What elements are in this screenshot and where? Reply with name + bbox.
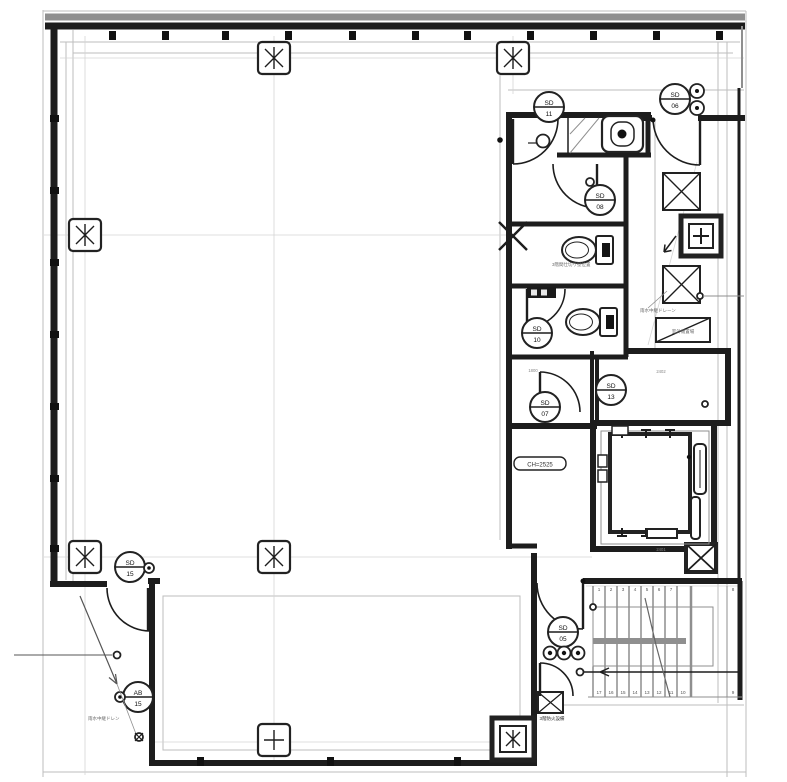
outdoor-unit-box: 室外機置場 xyxy=(656,318,710,342)
partition-note: 3階間仕切り壁位置 xyxy=(552,261,591,268)
device-sd11: SD 11 xyxy=(534,92,564,122)
svg-text:雨水中継ドレーン: 雨水中継ドレーン xyxy=(640,307,676,314)
ceiling-symbol-plus xyxy=(258,724,290,756)
svg-text:1: 1 xyxy=(598,587,601,592)
ceiling-symbol-asterisk-framed xyxy=(492,718,534,760)
device-sd08: SD 08 xyxy=(585,178,615,215)
svg-text:17: 17 xyxy=(596,690,602,695)
floor-plan-drawing: 1 2 3 4 5 6 7 8 17 16 15 14 13 12 11 10 … xyxy=(0,0,787,782)
svg-text:05: 05 xyxy=(559,636,567,643)
column-plus-box xyxy=(681,216,721,256)
svg-text:6: 6 xyxy=(658,587,661,592)
svg-text:7: 7 xyxy=(670,587,673,592)
svg-text:10: 10 xyxy=(680,690,686,695)
device-sd07: SD 07 xyxy=(530,392,560,422)
shaft-x-box xyxy=(663,173,700,210)
door-stop-knob xyxy=(528,135,550,148)
svg-text:SD: SD xyxy=(544,100,553,107)
svg-text:16: 16 xyxy=(608,690,614,695)
svg-text:SD: SD xyxy=(532,326,541,333)
device-sd06: SD 06 xyxy=(660,84,704,115)
svg-text:SD: SD xyxy=(595,193,604,200)
svg-text:13: 13 xyxy=(644,690,650,695)
svg-text:13: 13 xyxy=(607,394,615,401)
counterweight xyxy=(647,529,677,538)
pipe-dot xyxy=(497,137,503,143)
svg-text:08: 08 xyxy=(596,204,604,211)
stair-tread-numbers-top: 1 2 3 4 5 6 7 8 xyxy=(598,587,735,592)
ceiling-symbol-asterisk xyxy=(69,541,101,573)
device-sd13: SD 13 xyxy=(596,375,626,405)
shaft-x-box-small xyxy=(538,692,563,713)
hall-dot xyxy=(702,401,708,407)
drain-slope-arrow-right xyxy=(664,236,676,252)
door-toilet-anteroom-1 xyxy=(513,119,558,164)
elevator-door-panel xyxy=(691,497,700,539)
svg-text:8: 8 xyxy=(732,587,735,592)
svg-text:9: 9 xyxy=(732,690,735,695)
svg-text:07: 07 xyxy=(541,411,549,418)
svg-text:11: 11 xyxy=(669,690,674,695)
toilet-2 xyxy=(566,308,617,336)
elevator xyxy=(598,426,709,544)
svg-text:3: 3 xyxy=(622,587,625,592)
elevator-car xyxy=(610,434,690,532)
leader-left xyxy=(14,652,121,659)
svg-text:4: 4 xyxy=(634,587,637,592)
washlet-remote-panel xyxy=(527,287,556,298)
svg-text:15: 15 xyxy=(620,690,626,695)
device-sd15: SD 15 xyxy=(115,552,154,582)
dimension-text: 1800 xyxy=(528,368,538,373)
rain-drain-note-left: 雨水中継ドレン xyxy=(88,715,120,722)
svg-text:5: 5 xyxy=(646,587,649,592)
wash-basin xyxy=(602,116,643,152)
svg-text:SD: SD xyxy=(540,400,549,407)
svg-text:SD: SD xyxy=(558,625,567,632)
dimension-text: 2402 xyxy=(656,369,666,374)
svg-text:15: 15 xyxy=(126,571,134,578)
svg-text:SD: SD xyxy=(125,560,134,567)
svg-text:室外機置場: 室外機置場 xyxy=(672,328,695,335)
svg-text:11: 11 xyxy=(546,111,553,118)
devices: SD 11 SD 06 SD 08 SD 10 SD 13 SD xyxy=(115,84,704,712)
ceiling-symbol-asterisk xyxy=(258,42,290,74)
svg-text:SD: SD xyxy=(670,92,679,99)
rail-bracket xyxy=(598,470,607,482)
floor-plan-canvas: 1 2 3 4 5 6 7 8 17 16 15 14 13 12 11 10 … xyxy=(0,0,787,782)
ceiling-symbol-asterisk xyxy=(258,541,290,573)
stairs: 1 2 3 4 5 6 7 8 17 16 15 14 13 12 11 10 … xyxy=(577,586,743,697)
svg-text:14: 14 xyxy=(632,690,638,695)
svg-text:CH=2525: CH=2525 xyxy=(527,463,553,469)
svg-text:2: 2 xyxy=(610,587,613,592)
stair-break-line xyxy=(645,598,670,697)
door-balcony xyxy=(107,588,150,631)
car-dot xyxy=(687,455,691,459)
x-box-elevator-corner xyxy=(686,544,716,572)
ceiling-height-label: CH=2525 xyxy=(514,457,566,470)
svg-text:12: 12 xyxy=(656,690,662,695)
control-panel xyxy=(612,426,628,435)
svg-text:AB: AB xyxy=(134,690,143,697)
svg-text:06: 06 xyxy=(671,103,679,110)
shaft-x-box xyxy=(663,266,700,303)
svg-text:10: 10 xyxy=(533,337,541,344)
svg-text:15: 15 xyxy=(134,701,142,708)
dimension-text: 2401 xyxy=(656,547,666,552)
door-top-right-corridor xyxy=(651,118,701,166)
device-sd05: SD 05 xyxy=(544,617,585,660)
device-ab15: AB 15 xyxy=(115,682,153,712)
rail-bracket xyxy=(598,455,607,467)
toilet-1 xyxy=(562,236,613,264)
svg-text:SD: SD xyxy=(606,383,615,390)
fire-equipment-note: 3階防火設備 xyxy=(539,715,565,722)
leader-right xyxy=(697,293,744,299)
ceiling-symbol-asterisk xyxy=(497,42,529,74)
device-sd10: SD 10 xyxy=(522,318,552,348)
ceiling-symbol-asterisk xyxy=(69,219,101,251)
hatch-lines xyxy=(570,118,599,153)
